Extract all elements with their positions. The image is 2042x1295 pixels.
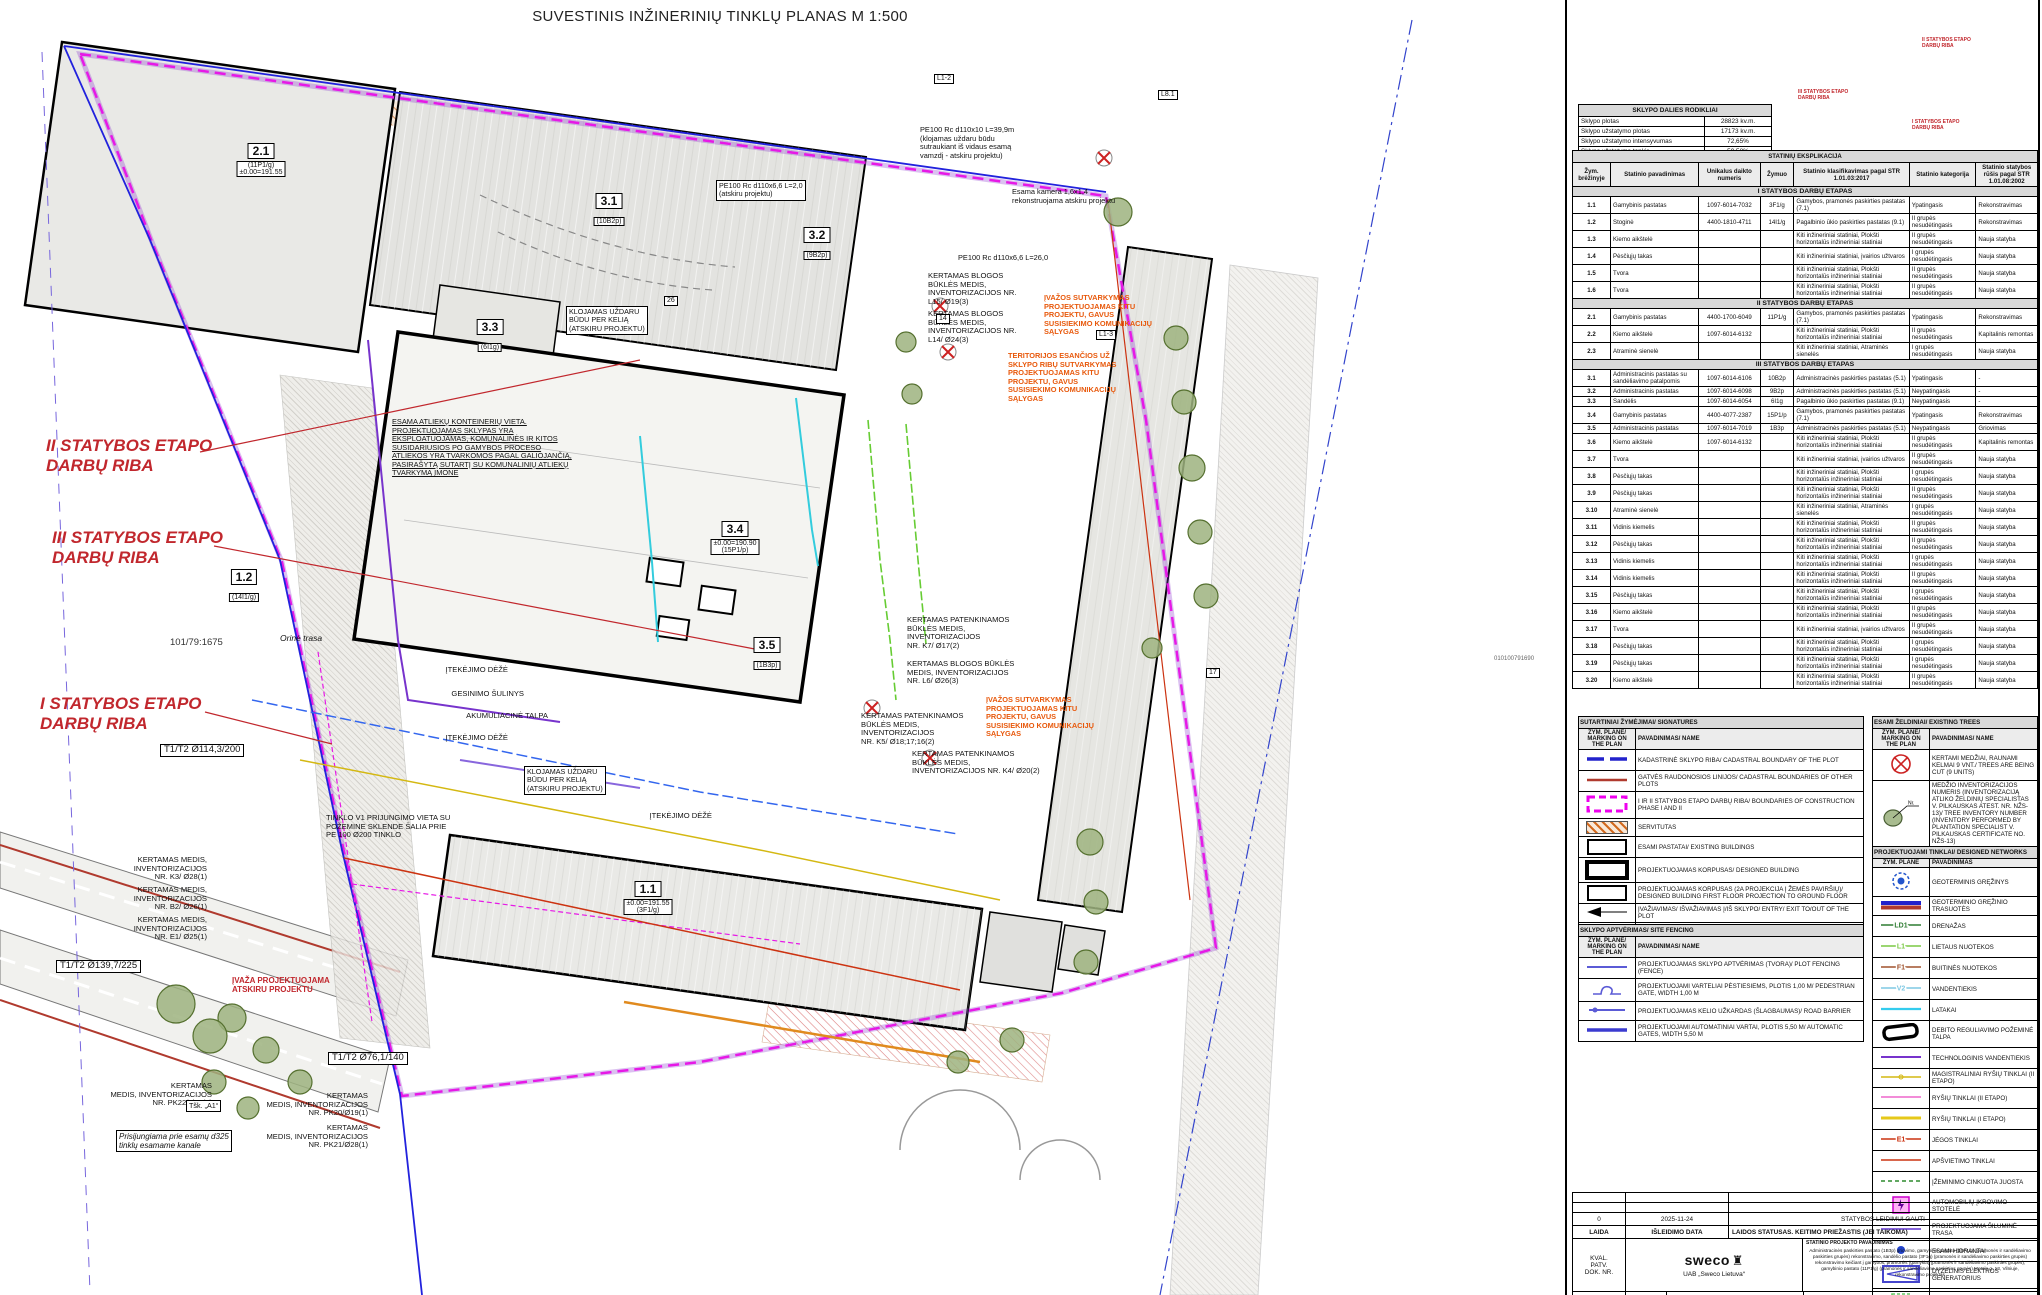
gutter-line-icon xyxy=(1879,1011,1923,1018)
table-row: 3.4Gamybinis pastatas4400-4077-238715P1/… xyxy=(1573,407,2038,424)
trunk-comms-line-icon xyxy=(1879,1078,1923,1085)
sewage-line-icon: F1 xyxy=(1879,969,1923,976)
storm-water-line xyxy=(906,424,926,644)
street-axis-line xyxy=(1160,20,1412,1295)
legend-title: SUTARTINIAI ŽYMĖJIMAI/ SIGNATURES xyxy=(1579,717,1864,729)
project-name-cell: STATINIO PROJEKTO PAVADINIMAS Administra… xyxy=(1803,1239,2037,1291)
svg-text:F1: F1 xyxy=(1897,965,1905,972)
column-header: Statinio kategorija xyxy=(1909,163,1976,187)
table-row: 3.11Vidinis kiemelisKiti inžineriniai st… xyxy=(1573,519,2038,536)
column-header: Statinio statybos rūšis pagal STR 1.01.0… xyxy=(1976,163,2038,187)
tech-water-line-icon xyxy=(1879,1059,1923,1066)
legend-row: ESAMI PASTATAI/ EXISTING BUILDINGS xyxy=(1579,837,1864,858)
status-header: LAIDOS STATUSAS. KEITIMO PRIEŽASTIS (JEI… xyxy=(1729,1226,2037,1238)
legend-row: SERVITUTAS xyxy=(1579,819,1864,837)
legend-row: LD1DRENAŽAS xyxy=(1873,916,2038,937)
indicator-row: Sklypo užstatymo intensyvumas72,65% xyxy=(1579,137,1772,147)
svg-text:LD1: LD1 xyxy=(1894,923,1907,930)
road-barrier-icon xyxy=(1585,1011,1629,1018)
drainage-line-icon: LD1 xyxy=(1879,927,1923,934)
table-row: 1.1Gamybinis pastatas1097-6014-70323F1/g… xyxy=(1573,197,2038,214)
revision-date: 2025-11-24 xyxy=(1626,1213,1729,1225)
legend-col-header: PAVADINIMAS/ NAME xyxy=(1930,729,2038,750)
legend-title: ESAMI ŽELDINIAI/ EXISTING TREES xyxy=(1873,717,2038,729)
legend-row: Nr.MEDŽIO INVENTORIZACIJOS NUMERIS (INVE… xyxy=(1873,781,2038,847)
table-row: 1.2Stoginė4400-1810-471114I1/gPagalbinio… xyxy=(1573,214,2038,231)
legend-row: GEOTERMINIO GRĘŽINIO TRASUOTĖS xyxy=(1873,897,2038,916)
indicator-row: Sklypo užstatymo plotas17173 kv.m. xyxy=(1579,127,1772,137)
map-phase-label: III STATYBOS ETAPO DARBŲ RIBA xyxy=(1798,90,1848,101)
water-supply-line-icon: V2 xyxy=(1879,990,1923,997)
explication-section-header: I STATYBOS DARBŲ ETAPAS xyxy=(1573,187,2038,197)
designed-projection-icon xyxy=(1580,885,1634,901)
svg-text:V2: V2 xyxy=(1897,986,1906,993)
storm-water-line-icon: L1 xyxy=(1879,948,1923,955)
legend-col-header: ŽYM. PLANE/ MARKING ON THE PLAN xyxy=(1579,729,1636,750)
table-row: 3.15Pėsčiųjų takasKiti inžineriniai stat… xyxy=(1573,587,2038,604)
legend-title: SKLYPO APTVĖRIMAS/ SITE FENCING xyxy=(1579,925,1864,937)
map-phase-label: II STATYBOS ETAPO DARBŲ RIBA xyxy=(1922,38,1971,49)
entry-exit-arrow-icon xyxy=(1585,913,1629,920)
legend-row: V2VANDENTIEKIS xyxy=(1873,979,2038,1000)
fencing-legend: SKLYPO APTVĖRIMAS/ SITE FENCING ŽYM. PLA… xyxy=(1578,924,1864,1042)
laida-header: LAIDA xyxy=(1573,1226,1626,1238)
lighting-line-icon xyxy=(1879,1162,1923,1169)
legend-row: ĮŽEMINIMO CINKUOTA JUOSTA xyxy=(1873,1172,2038,1193)
debit-tank-icon xyxy=(1879,1038,1923,1045)
storm-water-line xyxy=(868,420,896,700)
table-row: 3.1Administracinis pastatas su sandėliav… xyxy=(1573,370,2038,387)
table-row: 1.3Kiemo aikštelėKiti inžineriniai stati… xyxy=(1573,231,2038,248)
servitude-hatch-icon xyxy=(1580,821,1634,834)
legend-title: PROJEKTUOJAMI TINKLAI/ DESIGNED NETWORKS xyxy=(1873,847,2038,859)
column-header: Žymuo xyxy=(1760,163,1794,187)
title-block: 0 2025-11-24 STATYBOS LEIDIMUI GAUTI LAI… xyxy=(1572,1192,2038,1295)
table-row: 3.2Administracinis pastatas1097-6014-609… xyxy=(1573,387,2038,397)
legend-row: GEOTERMINIS GRĘŽINYS xyxy=(1873,868,2038,897)
buildings-explication-table: STATINIŲ EKSPLIKACIJA Žym. brėžinyjeStat… xyxy=(1572,150,2038,689)
tree-inventory-icon: Nr. xyxy=(1880,823,1922,830)
map-phase-label: I STATYBOS ETAPO DARBŲ RIBA xyxy=(1912,120,1960,131)
legend-row: APŠVIETIMO TINKLAI xyxy=(1873,1151,2038,1172)
table-row: 1.4Pėsčiųjų takasKiti inžineriniai stati… xyxy=(1573,248,2038,265)
legend-row: F1BUITINĖS NUOTEKOS xyxy=(1873,958,2038,979)
legend-col-header: PAVADINIMAS xyxy=(1930,859,2038,868)
building-1-1-canopy xyxy=(433,835,982,1030)
legend-row: TECHNOLOGINIS VANDENTIEKIS xyxy=(1873,1048,2038,1069)
legend-row: GATVĖS RAUDONOSIOS LINIJOS/ CADASTRAL BO… xyxy=(1579,771,1864,792)
legend-row: LATAKAI xyxy=(1873,1000,2038,1021)
legend-row: L1LIETAUS NUOTEKOS xyxy=(1873,937,2038,958)
table-row: 3.13Vidinis kiemelisKiti inžineriniai st… xyxy=(1573,553,2038,570)
company-name: UAB „Sweco Lietuva“ xyxy=(1683,1271,1745,1278)
legend-row: PROJEKTUOJAMI AUTOMATINIAI VARTAI, PLOTI… xyxy=(1579,1021,1864,1042)
sweco-logo: sweco ♜ xyxy=(1685,1252,1744,1269)
table-title: SKLYPO DALIES RODIKLIAI xyxy=(1579,105,1772,117)
table-row: 3.16Kiemo aikštelėKiti inžineriniai stat… xyxy=(1573,604,2038,621)
legend-row: KADASTRINĖ SKLYPO RIBA/ CADASTRAL BOUNDA… xyxy=(1579,750,1864,771)
fence-line-icon xyxy=(1585,969,1629,976)
geothermal-route-icon xyxy=(1879,906,1923,913)
buildings-group xyxy=(25,42,1212,1030)
legend-row: ĮVAŽIAVIMAS/ IŠVAŽIAVIMAS Į/IŠ SKLYPO/ E… xyxy=(1579,904,1864,923)
table-row: 3.20Kiemo aikštelėKiti inžineriniai stat… xyxy=(1573,672,2038,689)
column-header: Unikalus daikto numeris xyxy=(1699,163,1760,187)
legend-row: KERTAMI MEDŽIAI, RAUNAMI KELMAI 9 VNT./ … xyxy=(1873,750,2038,781)
table-row: 2.2Kiemo aikštelė1097-6014-6132Kiti inži… xyxy=(1573,326,2038,343)
plant-block xyxy=(657,616,689,640)
table-row: 3.8Pėsčiųjų takasKiti inžineriniai stati… xyxy=(1573,468,2038,485)
revision-number: 0 xyxy=(1573,1213,1626,1225)
table-row: 2.3Atraminė sienelėKiti inžineriniai sta… xyxy=(1573,343,2038,360)
existing-structure-arc xyxy=(1020,1140,1100,1180)
table-row: 3.14Vidinis kiemelisKiti inžineriniai st… xyxy=(1573,570,2038,587)
sheet-frame xyxy=(2038,0,2040,1295)
legend-col-header: ŽYM. PLANE/ MARKING ON THE PLAN xyxy=(1873,729,1930,750)
column-header: Statinio klasifikavimas pagal STR 1.01.0… xyxy=(1794,163,1909,187)
legend-row: PROJEKTUOJAMAS SKLYPO APTVĖRIMAS (TVORA)… xyxy=(1579,958,1864,979)
column-header: Žym. brėžinyje xyxy=(1573,163,1611,187)
automatic-gates-icon xyxy=(1585,1032,1629,1039)
table-row: 3.3Sandėlis1097-6014-60546I1gPagalbinio … xyxy=(1573,397,2038,407)
legend-row: E1JĖGOS TINKLAI xyxy=(1873,1130,2038,1151)
table-row: 3.19Pėsčiųjų takasKiti inžineriniai stat… xyxy=(1573,655,2038,672)
sweco-castle-icon: ♜ xyxy=(1732,1253,1744,1268)
building-3-4-designed xyxy=(354,332,844,702)
power-line-icon: E1 xyxy=(1879,1141,1923,1148)
svg-text:L1: L1 xyxy=(1897,944,1905,951)
table-row: 3.10Atraminė sienelėKiti inžineriniai st… xyxy=(1573,502,2038,519)
legend-col-header: PAVADINIMAS/ NAME xyxy=(1636,729,1864,750)
column-header: Statinio pavadinimas xyxy=(1611,163,1699,187)
project-name-label: STATINIO PROJEKTO PAVADINIMAS xyxy=(1803,1239,2037,1247)
plant-block xyxy=(698,586,735,614)
table-row: 3.12Pėsčiųjų takasKiti inžineriniai stat… xyxy=(1573,536,2038,553)
indicator-row: Sklypo plotas28823 kv.m. xyxy=(1579,117,1772,127)
legend-row: MAGISTRALINIAI RYŠIŲ TINKLAI (II ETAPO) xyxy=(1873,1069,2038,1088)
kval-label: KVAL. PATV. DOK. NR. xyxy=(1573,1239,1626,1291)
legend-row: DEBITO REGULIAVIMO POŽEMINĖ TALPA xyxy=(1873,1021,2038,1048)
legend-row: PROJEKTUOJAMAS KORPUSAS/ DESIGNED BUILDI… xyxy=(1579,858,1864,883)
explication-section-header: III STATYBOS DARBŲ ETAPAS xyxy=(1573,360,2038,370)
legend-row: PROJEKTUOJAMAS KELIO UŽKARDAS (ŠLAGBAUMA… xyxy=(1579,1002,1864,1021)
legend-row: RYŠIŲ TINKLAI (II ETAPO) xyxy=(1873,1088,2038,1109)
project-name: Administracinės paskirties pastato (1B3p… xyxy=(1803,1247,2037,1278)
pedestrian-gate-icon xyxy=(1585,992,1629,999)
company-cell: sweco ♜ UAB „Sweco Lietuva“ xyxy=(1626,1239,1803,1291)
table-row: 1.5TvoraKiti inžineriniai statiniai, Plo… xyxy=(1573,265,2038,282)
existing-building-icon xyxy=(1580,839,1634,855)
cadastral-boundary-line-icon xyxy=(1585,761,1629,768)
table-row: 1.6TvoraKiti inžineriniai statiniai, Plo… xyxy=(1573,282,2038,299)
table-row: 3.6Kiemo aikštelė1097-6014-6132Kiti inži… xyxy=(1573,434,2038,451)
site-plan-svg xyxy=(0,0,1565,1295)
legend-col-header: ŽYM. PLANE/ MARKING ON THE PLAN xyxy=(1579,937,1636,958)
geothermal-well-icon xyxy=(1888,887,1914,894)
table-row: 3.9Pėsčiųjų takasKiti inžineriniai stati… xyxy=(1573,485,2038,502)
tree-cut-icon xyxy=(1886,771,1916,778)
sheet-frame xyxy=(1565,0,1567,1295)
designed-building-icon xyxy=(1580,860,1634,880)
outbuilding xyxy=(980,912,1062,992)
date-header: IŠLEIDIMO DATA xyxy=(1626,1226,1729,1238)
existing-structure-arc xyxy=(900,1090,1020,1150)
table-row: 3.17TvoraKiti inžineriniai statiniai, įv… xyxy=(1573,621,2038,638)
explication-section-header: II STATYBOS DARBŲ ETAPAS xyxy=(1573,299,2038,309)
table-row: 3.7TvoraKiti inžineriniai statiniai, įva… xyxy=(1573,451,2038,468)
comms1-line-icon xyxy=(1879,1120,1923,1127)
legend-row: I IR II STATYBOS ETAPO DARBŲ RIBA/ BOUND… xyxy=(1579,792,1864,819)
table-title: STATINIŲ EKSPLIKACIJA xyxy=(1573,151,2038,163)
table-row: 3.5Administracinis pastatas1097-6014-701… xyxy=(1573,424,2038,434)
signatures-legend: SUTARTINIAI ŽYMĖJIMAI/ SIGNATURES ŽYM. P… xyxy=(1578,716,1864,942)
red-lines-icon xyxy=(1585,782,1629,789)
grounding-strip-icon xyxy=(1879,1183,1923,1190)
legend-col-header: PAVADINIMAS/ NAME xyxy=(1636,937,1864,958)
svg-text:Nr.: Nr. xyxy=(1908,800,1914,806)
table-row: 3.18Pėsčiųjų takasKiti inžineriniai stat… xyxy=(1573,638,2038,655)
phase-boundary-icon xyxy=(1585,809,1629,816)
svg-text:E1: E1 xyxy=(1897,1137,1906,1144)
revision-status: STATYBOS LEIDIMUI GAUTI xyxy=(1729,1213,2037,1225)
legend-row: PROJEKTUOJAMAS KORPUSAS (2A PROJEKCIJA Į… xyxy=(1579,883,1864,904)
page-title: SUVESTINIS INŽINERINIŲ TINKLŲ PLANAS M 1… xyxy=(420,8,1020,25)
drawing-sheet: SUVESTINIS INŽINERINIŲ TINKLŲ PLANAS M 1… xyxy=(0,0,2042,1295)
comms2-line-icon xyxy=(1879,1099,1923,1106)
table-row: 2.1Gamybinis pastatas4400-1700-604911P1/… xyxy=(1573,309,2038,326)
legend-row: RYŠIŲ TINKLAI (I ETAPO) xyxy=(1873,1109,2038,1130)
legend-row: PROJEKTUOJAMI VARTELIAI PĖSTIESIEMS, PLO… xyxy=(1579,979,1864,1002)
legend-col-header: ŽYM. PLANE xyxy=(1873,859,1930,868)
